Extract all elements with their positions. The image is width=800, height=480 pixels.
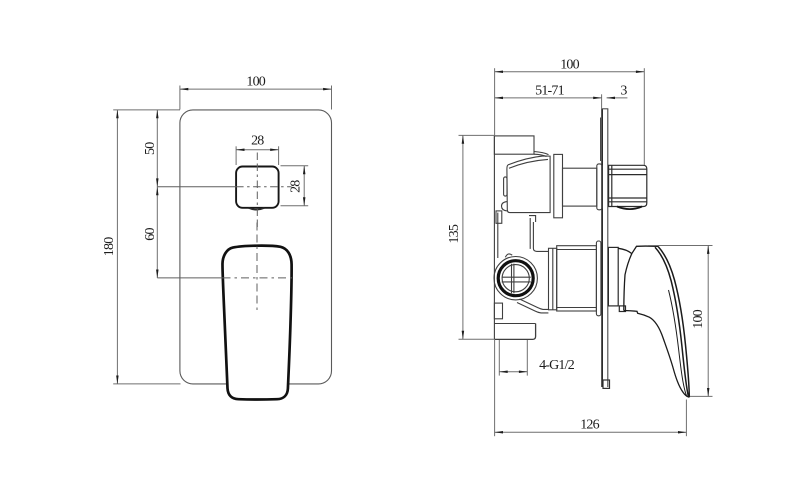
svg-text:180: 180 [102, 237, 117, 256]
svg-text:4-G1/2: 4-G1/2 [539, 358, 575, 373]
svg-text:51-71: 51-71 [535, 83, 564, 98]
svg-text:100: 100 [246, 75, 265, 90]
svg-text:50: 50 [143, 142, 158, 155]
svg-text:3: 3 [620, 83, 627, 98]
svg-text:126: 126 [580, 417, 599, 432]
svg-text:100: 100 [691, 309, 706, 328]
svg-text:28: 28 [289, 180, 304, 193]
svg-text:28: 28 [251, 134, 264, 149]
svg-text:100: 100 [560, 57, 579, 72]
svg-text:60: 60 [143, 228, 158, 241]
svg-text:135: 135 [447, 224, 462, 243]
